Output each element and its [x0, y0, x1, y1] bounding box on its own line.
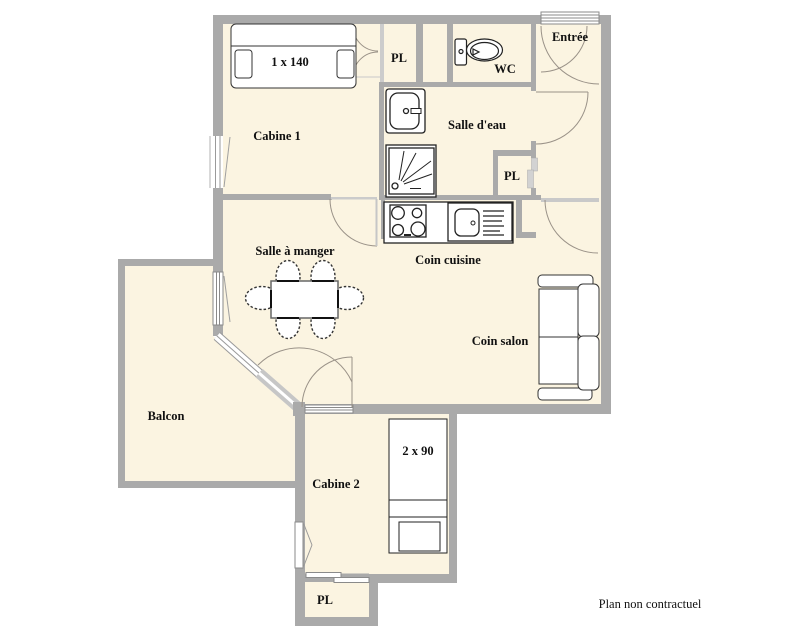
svg-text:PL: PL — [317, 593, 333, 607]
svg-text:Cabine 2: Cabine 2 — [312, 477, 360, 491]
svg-text:Coin salon: Coin salon — [472, 334, 529, 348]
svg-text:Entrée: Entrée — [552, 30, 589, 44]
svg-text:PL: PL — [504, 169, 520, 183]
svg-text:PL: PL — [391, 51, 407, 65]
svg-text:1 x 140: 1 x 140 — [271, 55, 309, 69]
svg-text:Cabine 1: Cabine 1 — [253, 129, 301, 143]
svg-text:WC: WC — [494, 62, 516, 76]
svg-text:2 x 90: 2 x 90 — [402, 444, 433, 458]
svg-text:Balcon: Balcon — [148, 409, 185, 423]
svg-text:Coin cuisine: Coin cuisine — [415, 253, 481, 267]
svg-text:Salle d'eau: Salle d'eau — [448, 118, 506, 132]
svg-text:Salle à manger: Salle à manger — [255, 244, 335, 258]
svg-text:Plan non contractuel: Plan non contractuel — [599, 597, 702, 611]
